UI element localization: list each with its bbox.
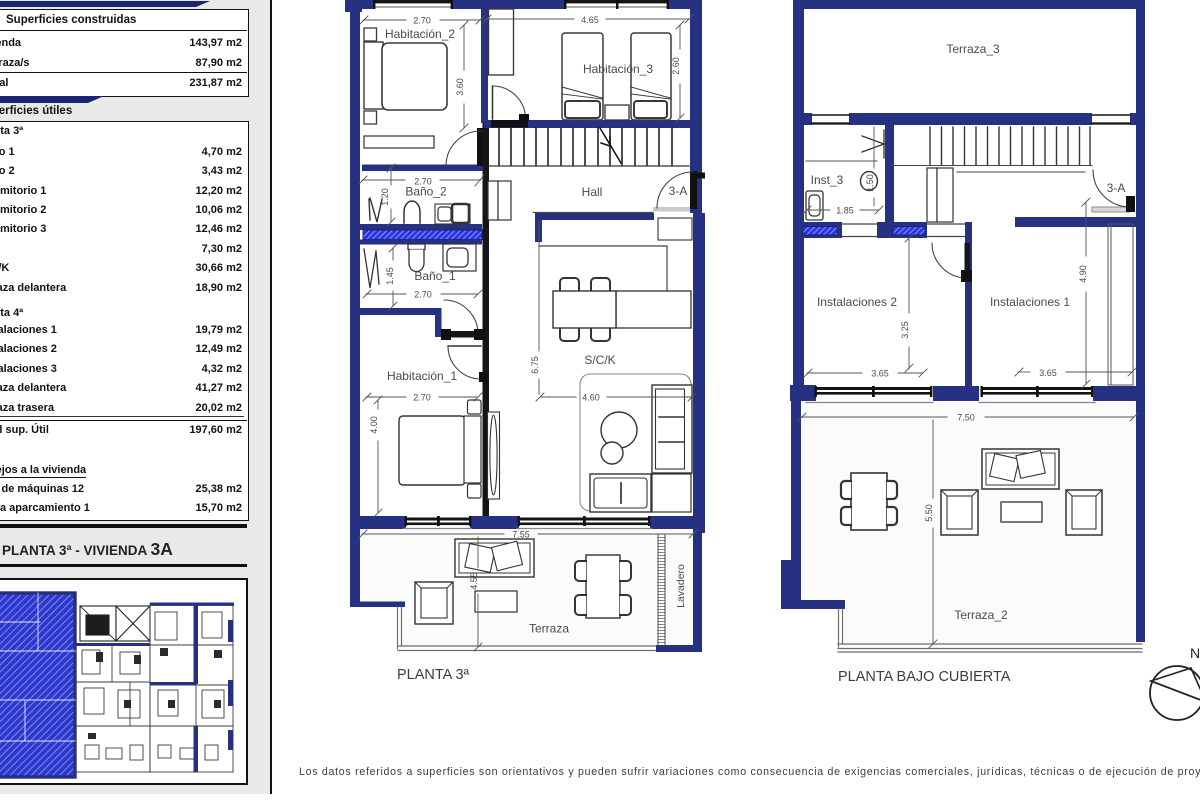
svg-text:1.45: 1.45 (385, 267, 395, 285)
svg-text:Terraza: Terraza (529, 622, 569, 636)
svg-text:6.75: 6.75 (530, 356, 540, 374)
svg-text:Baño_2: Baño_2 (405, 185, 447, 199)
svg-text:3-A: 3-A (669, 184, 688, 198)
svg-text:Inst_3: Inst_3 (811, 173, 844, 187)
svg-text:4.90: 4.90 (1078, 265, 1088, 283)
svg-text:7.55: 7.55 (512, 530, 530, 540)
svg-text:PLANTA BAJO CUBIERTA: PLANTA BAJO CUBIERTA (838, 669, 1011, 685)
svg-text:4.65: 4.65 (581, 15, 599, 25)
svg-text:Terraza_2: Terraza_2 (954, 608, 1008, 622)
svg-text:3.60: 3.60 (455, 78, 465, 96)
svg-text:Terraza_3: Terraza_3 (946, 42, 1000, 56)
svg-text:4.00: 4.00 (369, 416, 379, 434)
svg-text:Habitación_2: Habitación_2 (385, 27, 455, 41)
svg-text:2.70: 2.70 (413, 16, 431, 26)
svg-text:1.20: 1.20 (380, 188, 390, 206)
svg-text:3.25: 3.25 (900, 321, 910, 339)
svg-text:Instalaciones 1: Instalaciones 1 (990, 295, 1070, 309)
svg-text:Instalaciones 2: Instalaciones 2 (817, 295, 897, 309)
svg-text:PLANTA 3ª: PLANTA 3ª (397, 667, 470, 683)
svg-text:7.50: 7.50 (957, 413, 975, 423)
svg-text:3-A: 3-A (1107, 181, 1126, 195)
svg-text:Hall: Hall (582, 185, 603, 199)
svg-text:N: N (1190, 645, 1200, 661)
svg-text:5.50: 5.50 (924, 504, 934, 522)
svg-text:4.55: 4.55 (469, 572, 479, 590)
svg-text:Habitación_1: Habitación_1 (387, 369, 457, 383)
svg-text:Lavadero: Lavadero (675, 564, 687, 608)
svg-text:S/C/K: S/C/K (584, 353, 615, 367)
svg-text:4.60: 4.60 (582, 393, 600, 403)
svg-text:3.65: 3.65 (1039, 368, 1057, 378)
svg-text:Habitación_3: Habitación_3 (583, 62, 653, 76)
svg-text:3.65: 3.65 (871, 369, 889, 379)
svg-text:2.70: 2.70 (413, 393, 431, 403)
svg-text:1.85: 1.85 (836, 206, 854, 216)
svg-text:2.70: 2.70 (414, 290, 432, 300)
svg-text:Baño_1: Baño_1 (414, 269, 456, 283)
svg-text:2.60: 2.60 (671, 57, 681, 75)
svg-text:1.50: 1.50 (865, 174, 875, 192)
